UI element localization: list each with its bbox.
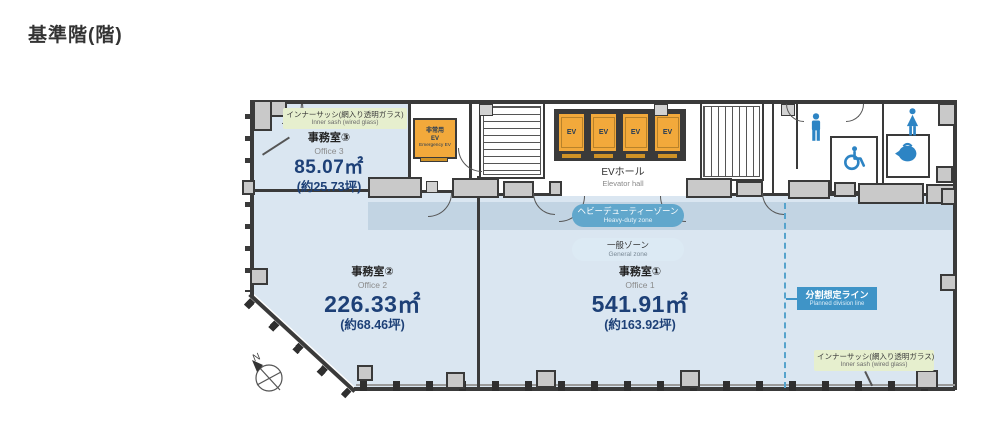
elevator-car: EV	[589, 112, 618, 153]
office-1-name-jp: 事務室①	[560, 266, 720, 280]
general-zone-label-jp: 一般ゾーン	[572, 240, 684, 251]
column-block	[916, 370, 938, 389]
office-1-area: 541.91㎡	[560, 292, 720, 317]
wall-segment	[762, 103, 764, 181]
wall-segment	[543, 103, 545, 179]
column-block	[452, 178, 499, 198]
elevator-label: EV	[593, 117, 615, 148]
floor-plan: EV EV EV EV 非常用 EV Emergency EV EVホール El…	[0, 0, 988, 445]
stairwell-left	[483, 106, 541, 175]
north-compass-icon: N	[244, 348, 292, 400]
division-label-en: Planned division line	[797, 301, 877, 308]
emergency-ev-label-jp2: EV	[431, 136, 439, 144]
emergency-elevator: 非常用 EV Emergency EV	[413, 118, 457, 159]
mens-restroom-icon	[806, 113, 826, 142]
office-1-tsubo: (約163.92坪)	[560, 317, 720, 334]
office-2-label: 事務室② Office 2 226.33㎡ (約68.46坪)	[295, 266, 450, 334]
column-block	[357, 365, 373, 381]
column-block	[858, 183, 924, 204]
column-block	[736, 181, 763, 197]
column-block	[503, 181, 534, 198]
column-block	[536, 370, 556, 388]
window-mullions-left	[245, 114, 250, 292]
office-2-name-jp: 事務室②	[295, 266, 450, 280]
elevator-label: EV	[561, 117, 583, 148]
column-block	[426, 181, 438, 193]
elevator-door	[420, 157, 448, 162]
division-label-jp: 分割想定ライン	[797, 289, 877, 301]
office-3-area: 85.07㎡	[253, 158, 405, 179]
door-arc	[458, 148, 482, 172]
office-3-name-en: Office 3	[253, 146, 405, 156]
wall-segment	[882, 103, 884, 195]
door-arc	[786, 104, 804, 122]
elevator-door	[657, 153, 678, 159]
corner-block	[253, 100, 272, 131]
elevator-door	[561, 153, 582, 159]
office-1-label: 事務室① Office 1 541.91㎡ (約163.92坪)	[560, 266, 720, 334]
column-block	[941, 188, 956, 205]
inner-sash-label-bottom: インナーサッシ(網入り透明ガラス) Inner sash (wired glas…	[814, 350, 934, 371]
column-block	[936, 166, 953, 183]
office-1-name-en: Office 1	[560, 280, 720, 290]
inner-sash-top-en: Inner sash (wired glass)	[286, 120, 404, 127]
elevator-hall-label-jp: EVホール	[583, 166, 663, 180]
elevator-label: EV	[657, 117, 679, 148]
elevator-car: EV	[621, 112, 650, 153]
accessible-restroom-icon	[841, 145, 867, 171]
elevator-door	[593, 153, 614, 159]
womens-restroom-icon	[903, 108, 922, 136]
planned-division-line-label: 分割想定ライン Planned division line	[797, 287, 877, 310]
hot-water-kettle-icon	[894, 141, 919, 162]
office-2-name-en: Office 2	[295, 280, 450, 290]
wall-segment	[953, 100, 957, 390]
elevator-car: EV	[653, 112, 682, 153]
column-block	[788, 180, 830, 199]
heavy-duty-zone-label-en: Heavy-duty zone	[572, 217, 684, 224]
column-block	[654, 104, 668, 116]
heavy-duty-zone-label: ヘビーデューティーゾーン Heavy-duty zone	[572, 204, 684, 227]
office-3-label: 事務室③ Office 3 85.07㎡ (約25.73坪)	[253, 132, 405, 196]
office-2-area: 226.33㎡	[295, 292, 450, 317]
elevator-label: EV	[625, 117, 647, 148]
stairwell-right	[703, 106, 760, 177]
office-3-tsubo: (約25.73坪)	[253, 179, 405, 196]
general-zone-label: 一般ゾーン General zone	[572, 238, 684, 261]
elevator-car: EV	[557, 112, 586, 153]
wall-segment	[772, 103, 774, 195]
emergency-ev-label-jp: 非常用	[426, 128, 444, 136]
elevator-hall-label: EVホール Elevator hall	[583, 166, 663, 188]
door-arc	[846, 104, 864, 122]
elevator-door	[625, 153, 646, 159]
corner-block	[938, 103, 956, 126]
wall-office-divider	[477, 176, 480, 389]
office-2-tsubo: (約68.46坪)	[295, 317, 450, 334]
column-block	[250, 268, 268, 285]
planned-division-line	[784, 203, 786, 388]
general-zone-label-en: General zone	[572, 251, 684, 258]
inner-sash-bottom-en: Inner sash (wired glass)	[817, 362, 931, 369]
column-block	[686, 178, 732, 198]
inner-sash-label-top: インナーサッシ(網入り透明ガラス) Inner sash (wired glas…	[283, 108, 407, 129]
column-block	[834, 182, 856, 197]
wall-segment	[700, 103, 702, 181]
elevator-hall-label-en: Elevator hall	[583, 180, 663, 188]
column-block	[479, 104, 493, 116]
column-block	[446, 372, 465, 389]
emergency-ev-label-en: Emergency EV	[419, 143, 451, 149]
column-block	[940, 274, 957, 291]
column-block	[680, 370, 700, 388]
heavy-duty-zone-label-jp: ヘビーデューティーゾーン	[572, 206, 684, 217]
